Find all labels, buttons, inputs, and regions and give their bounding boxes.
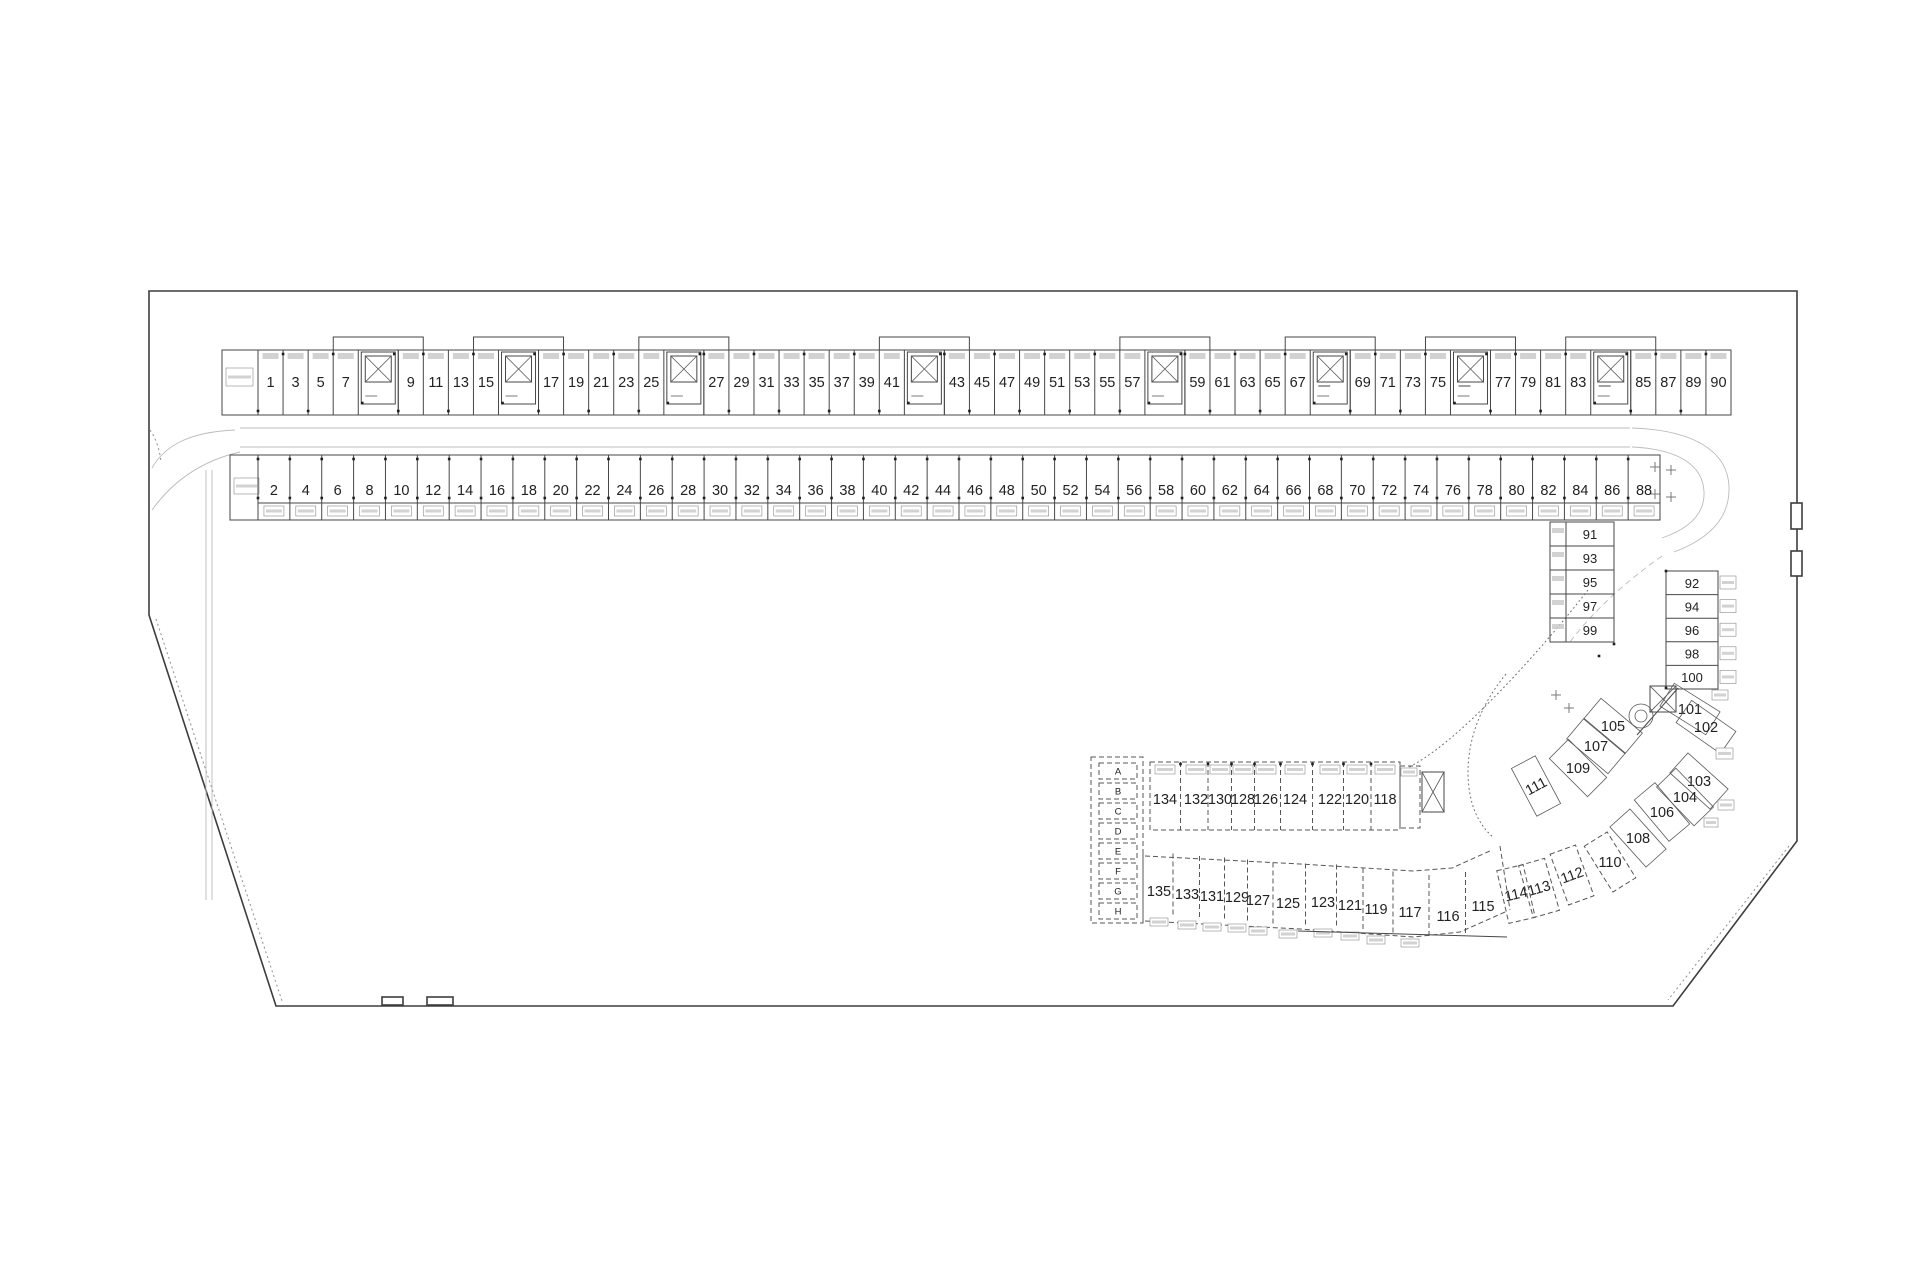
stall-number-25: 25 <box>643 375 659 391</box>
stall-number-59: 59 <box>1189 375 1205 391</box>
code-tag-text <box>1258 768 1274 771</box>
corner-mark <box>1021 497 1024 500</box>
floor-plan-canvas: 1357911131517192123252729313335373941434… <box>0 0 1920 1280</box>
stall-number-77: 77 <box>1495 375 1511 391</box>
stall-number-49: 49 <box>1024 375 1040 391</box>
code-tag-text <box>1572 510 1588 513</box>
stall-number-4: 4 <box>302 483 310 499</box>
corner-mark <box>968 410 971 413</box>
stall-number-102: 102 <box>1694 720 1718 736</box>
corner-mark <box>1374 353 1377 356</box>
code-tag-text <box>1710 353 1726 359</box>
corner-mark <box>1345 353 1348 356</box>
code-tag-text <box>1254 510 1270 513</box>
code-tag-text <box>1190 510 1206 513</box>
corner-mark <box>447 410 450 413</box>
code-tag-text <box>1094 510 1110 513</box>
stall-number-53: 53 <box>1074 375 1090 391</box>
code-tag-text <box>1413 510 1429 513</box>
stall-number-99: 99 <box>1583 623 1597 638</box>
code-tag-text <box>428 353 444 359</box>
corner-mark <box>1485 353 1488 356</box>
stall-number-22: 22 <box>584 483 600 499</box>
corner-mark <box>1349 410 1352 413</box>
corner-mark <box>1531 497 1534 500</box>
code-tag-text <box>1722 675 1734 678</box>
corner-mark <box>1564 353 1567 356</box>
stall-number-35: 35 <box>809 375 825 391</box>
corner-mark <box>1053 497 1056 500</box>
stall-number-9: 9 <box>407 375 415 391</box>
corner-mark <box>1308 497 1311 500</box>
code-tag-text <box>1369 939 1383 942</box>
stall-number-30: 30 <box>712 483 728 499</box>
code-tag-text <box>236 485 257 488</box>
code-tag-text <box>263 353 279 359</box>
code-tag-text <box>1445 510 1461 513</box>
code-tag-text <box>1251 930 1265 933</box>
stall-number-93: 93 <box>1583 551 1597 566</box>
stall-number-55: 55 <box>1099 375 1115 391</box>
code-tag-text <box>1049 353 1065 359</box>
code-tag-text <box>1403 771 1415 774</box>
corner-mark <box>1424 353 1427 356</box>
corner-mark <box>767 458 770 461</box>
code-tag-text <box>903 510 919 513</box>
corner-mark <box>332 353 335 356</box>
corner-mark <box>699 353 702 356</box>
corner-mark <box>1489 410 1492 413</box>
corner-mark <box>257 410 260 413</box>
code-tag-text <box>1099 353 1115 359</box>
corner-mark <box>1563 497 1566 500</box>
corner-mark <box>1625 353 1628 356</box>
corner-mark <box>1213 497 1216 500</box>
corner-mark <box>1053 458 1056 461</box>
corner-mark <box>1514 353 1517 356</box>
code-tag-text <box>618 353 634 359</box>
code-tag-text <box>568 353 584 359</box>
code-tag-text <box>543 353 559 359</box>
stall-number-134: 134 <box>1153 792 1177 808</box>
code-tag-text <box>1189 353 1205 359</box>
corner-mark <box>1259 410 1262 413</box>
stall-number-106: 106 <box>1650 805 1674 821</box>
corner-mark <box>1244 458 1247 461</box>
code-tag-text <box>1552 528 1564 533</box>
stall-number-133: 133 <box>1175 887 1199 903</box>
code-tag-text <box>759 353 775 359</box>
corner-mark <box>1180 353 1183 356</box>
code-tag-text <box>266 510 282 513</box>
stall-number-11: 11 <box>428 375 443 391</box>
corner-mark <box>1230 763 1233 766</box>
corner-mark <box>575 458 578 461</box>
corner-mark <box>1665 687 1668 690</box>
code-tag-text <box>809 353 825 359</box>
stall-number-21: 21 <box>593 375 609 391</box>
corner-mark <box>1244 497 1247 500</box>
stall-number-123: 123 <box>1311 895 1335 911</box>
corner-mark <box>1593 402 1596 405</box>
corner-mark <box>830 497 833 500</box>
letter-label-E: E <box>1115 847 1121 858</box>
corner-mark <box>1399 410 1402 413</box>
corner-mark <box>384 497 387 500</box>
corner-mark <box>767 497 770 500</box>
code-tag-text <box>1722 581 1734 584</box>
stall-number-26: 26 <box>648 483 664 499</box>
door-bump <box>1791 551 1802 576</box>
code-tag-text <box>999 353 1015 359</box>
code-tag-text <box>362 510 378 513</box>
corner-mark <box>1149 458 1152 461</box>
corner-mark <box>1093 353 1096 356</box>
stall-number-20: 20 <box>553 483 569 499</box>
corner-mark <box>637 410 640 413</box>
stall-number-61: 61 <box>1214 375 1230 391</box>
corner-mark <box>1068 410 1071 413</box>
code-tag-text <box>1349 768 1365 771</box>
code-tag-text <box>1381 510 1397 513</box>
corner-mark <box>307 410 310 413</box>
corner-mark <box>1655 353 1658 356</box>
stall-number-98: 98 <box>1685 647 1699 662</box>
letter-label-C: C <box>1115 807 1122 818</box>
corner-mark <box>1627 458 1630 461</box>
code-tag-text <box>648 510 664 513</box>
stall-number-109: 109 <box>1566 761 1590 777</box>
stall-number-115: 115 <box>1471 899 1494 915</box>
stall-number-46: 46 <box>967 483 983 499</box>
corner-mark <box>1119 410 1122 413</box>
code-tag-text <box>1290 353 1306 359</box>
corner-mark <box>1453 402 1456 405</box>
code-tag-text <box>1685 353 1701 359</box>
code-tag-text <box>839 510 855 513</box>
corner-mark <box>939 353 942 356</box>
code-tag-text <box>1722 628 1734 631</box>
corner-mark <box>1284 353 1287 356</box>
corner-mark <box>575 497 578 500</box>
stall-number-96: 96 <box>1685 623 1699 638</box>
letter-label-H: H <box>1115 907 1122 918</box>
corner-mark <box>1021 458 1024 461</box>
corner-mark <box>1179 763 1182 766</box>
corner-mark <box>1705 353 1708 356</box>
stall-number-71: 71 <box>1380 375 1396 391</box>
corner-mark <box>1340 458 1343 461</box>
code-tag-text <box>643 353 659 359</box>
corner-mark <box>703 497 706 500</box>
stall-number-51: 51 <box>1049 375 1065 391</box>
stall-number-125: 125 <box>1276 896 1300 912</box>
corner-mark <box>1181 458 1184 461</box>
stall-number-97: 97 <box>1583 599 1597 614</box>
corner-mark <box>671 458 674 461</box>
code-tag-text <box>1722 652 1734 655</box>
corner-mark <box>472 353 475 356</box>
code-tag-text <box>1180 924 1194 927</box>
stall-number-100: 100 <box>1681 670 1703 685</box>
corner-mark <box>416 458 419 461</box>
corner-mark <box>1627 497 1630 500</box>
stall-number-19: 19 <box>568 375 584 391</box>
corner-mark <box>384 458 387 461</box>
corner-mark <box>352 458 355 461</box>
letter-label-G: G <box>1114 887 1121 898</box>
code-tag-text <box>453 353 469 359</box>
stall-number-58: 58 <box>1158 483 1174 499</box>
stall-number-105: 105 <box>1601 719 1625 735</box>
corner-mark <box>612 353 615 356</box>
stall-number-47: 47 <box>999 375 1015 391</box>
code-tag-text <box>593 353 609 359</box>
stall-number-76: 76 <box>1445 483 1461 499</box>
corner-mark <box>393 353 396 356</box>
code-tag-text <box>1063 510 1079 513</box>
code-tag-text <box>1570 353 1586 359</box>
corner-mark <box>1276 458 1279 461</box>
stall-number-8: 8 <box>365 483 373 499</box>
stall-number-48: 48 <box>999 483 1015 499</box>
stall-number-132: 132 <box>1184 792 1208 808</box>
corner-mark <box>1311 763 1314 766</box>
corner-mark <box>1340 497 1343 500</box>
corner-mark <box>1253 763 1256 766</box>
corner-mark <box>257 458 260 461</box>
corner-mark <box>703 458 706 461</box>
corner-mark <box>1595 497 1598 500</box>
stall-number-108: 108 <box>1626 831 1650 847</box>
code-tag-text <box>1714 694 1726 697</box>
stall-number-7: 7 <box>342 375 350 391</box>
stall-number-91: 91 <box>1583 527 1597 542</box>
corner-mark <box>943 353 946 356</box>
corner-mark <box>1234 353 1237 356</box>
corner-mark <box>1629 410 1632 413</box>
code-tag-text <box>884 353 900 359</box>
stall-number-72: 72 <box>1381 483 1397 499</box>
stall-number-16: 16 <box>489 483 505 499</box>
floor-plan-page: 1357911131517192123252729313335373941434… <box>0 0 1920 1280</box>
code-tag-text <box>1377 768 1393 771</box>
corner-mark <box>1665 570 1668 573</box>
corner-mark <box>778 410 781 413</box>
corner-mark <box>639 458 642 461</box>
corner-mark <box>1468 458 1471 461</box>
stall-number-13: 13 <box>453 375 469 391</box>
code-tag-text <box>553 510 569 513</box>
corner-mark <box>289 458 292 461</box>
stall-number-34: 34 <box>776 483 792 499</box>
corner-mark <box>703 353 706 356</box>
stall-number-131: 131 <box>1200 889 1224 905</box>
code-tag-text <box>1635 353 1651 359</box>
corner-mark <box>1018 410 1021 413</box>
corner-mark <box>1370 763 1373 766</box>
code-tag-text <box>1403 942 1417 945</box>
corner-mark <box>990 497 993 500</box>
corner-mark <box>512 497 515 500</box>
stall-number-127: 127 <box>1246 893 1270 909</box>
corner-mark <box>735 497 738 500</box>
code-tag-text <box>298 510 314 513</box>
stall-number-80: 80 <box>1509 483 1525 499</box>
stall-number-119: 119 <box>1364 902 1387 918</box>
code-tag-text <box>1157 768 1173 771</box>
corner-mark <box>926 497 929 500</box>
code-tag-text <box>1322 768 1338 771</box>
corner-mark <box>958 458 961 461</box>
corner-mark <box>1404 497 1407 500</box>
code-tag-text <box>935 510 951 513</box>
code-tag-text <box>680 510 696 513</box>
code-tag-text <box>425 510 441 513</box>
corner-mark <box>397 410 400 413</box>
stall-number-18: 18 <box>521 483 537 499</box>
corner-mark <box>639 497 642 500</box>
stall-number-63: 63 <box>1239 375 1255 391</box>
code-tag-text <box>489 510 505 513</box>
code-tag-text <box>776 510 792 513</box>
code-tag-text <box>999 510 1015 513</box>
code-tag-text <box>585 510 601 513</box>
corner-mark <box>1148 402 1151 405</box>
corner-mark <box>862 458 865 461</box>
code-tag-text <box>330 510 346 513</box>
stall-number-67: 67 <box>1290 375 1306 391</box>
stall-number-2: 2 <box>270 483 278 499</box>
corner-mark <box>480 497 483 500</box>
stall-number-68: 68 <box>1317 483 1333 499</box>
corner-mark <box>320 458 323 461</box>
corner-mark <box>798 458 801 461</box>
code-tag-text <box>1031 510 1047 513</box>
stall-number-79: 79 <box>1520 375 1536 391</box>
code-tag-text <box>457 510 473 513</box>
stall-number-117: 117 <box>1398 905 1421 921</box>
code-tag-text <box>834 353 850 359</box>
stall-number-95: 95 <box>1583 575 1597 590</box>
code-tag-text <box>1636 510 1652 513</box>
code-tag-text <box>974 353 990 359</box>
code-tag-text <box>733 353 749 359</box>
corner-mark <box>1149 497 1152 500</box>
code-tag-text <box>1158 510 1174 513</box>
corner-mark <box>667 402 670 405</box>
code-tag-text <box>1074 353 1090 359</box>
stall-number-52: 52 <box>1062 483 1078 499</box>
code-tag-text <box>1430 353 1446 359</box>
stall-number-81: 81 <box>1545 375 1561 391</box>
corner-mark <box>1209 410 1212 413</box>
stall-number-33: 33 <box>784 375 800 391</box>
stall-number-122: 122 <box>1318 792 1342 808</box>
corner-mark <box>543 497 546 500</box>
corner-mark <box>878 410 881 413</box>
corner-mark <box>1436 497 1439 500</box>
code-tag-text <box>859 353 875 359</box>
stall-number-92: 92 <box>1685 576 1699 591</box>
corner-mark <box>1613 643 1616 646</box>
code-tag-text <box>1188 768 1204 771</box>
corner-mark <box>320 497 323 500</box>
code-tag-text <box>808 510 824 513</box>
stall-number-87: 87 <box>1660 375 1676 391</box>
code-tag-text <box>1212 768 1228 771</box>
stall-number-78: 78 <box>1477 483 1493 499</box>
code-tag-text <box>1343 935 1357 938</box>
stall-number-135: 135 <box>1147 884 1171 900</box>
code-tag-text <box>1660 353 1676 359</box>
stall-number-42: 42 <box>903 483 919 499</box>
corner-mark <box>533 353 536 356</box>
stall-number-32: 32 <box>744 483 760 499</box>
corner-mark <box>862 497 865 500</box>
code-tag-text <box>393 510 409 513</box>
corner-mark <box>537 410 540 413</box>
stall-number-14: 14 <box>457 483 473 499</box>
corner-mark <box>1598 655 1601 658</box>
stall-number-83: 83 <box>1570 375 1586 391</box>
stall-number-103: 103 <box>1687 774 1711 790</box>
corner-mark <box>501 402 504 405</box>
code-tag-text <box>228 376 251 379</box>
code-tag-text <box>1287 768 1303 771</box>
corner-mark <box>352 497 355 500</box>
gate-bump <box>427 997 453 1005</box>
stall-number-1: 1 <box>266 375 274 391</box>
corner-mark <box>416 497 419 500</box>
stall-number-17: 17 <box>543 375 559 391</box>
code-tag-text <box>1552 552 1564 557</box>
corner-mark <box>1117 497 1120 500</box>
stall-number-41: 41 <box>884 375 900 391</box>
corner-mark <box>1468 497 1471 500</box>
corner-mark <box>1213 458 1216 461</box>
corner-mark <box>1531 458 1534 461</box>
stall-number-50: 50 <box>1031 483 1047 499</box>
corner-mark <box>1043 353 1046 356</box>
code-tag-text <box>1405 353 1421 359</box>
corner-mark <box>587 410 590 413</box>
stall-number-43: 43 <box>949 375 965 391</box>
stall-number-66: 66 <box>1285 483 1301 499</box>
corner-mark <box>1680 410 1683 413</box>
corner-mark <box>990 458 993 461</box>
corner-mark <box>798 497 801 500</box>
code-tag-text <box>1349 510 1365 513</box>
stall-number-29: 29 <box>733 375 749 391</box>
corner-mark <box>282 353 285 356</box>
corner-mark <box>289 497 292 500</box>
letter-label-F: F <box>1115 867 1121 878</box>
stall-number-15: 15 <box>478 375 494 391</box>
stall-number-69: 69 <box>1355 375 1371 391</box>
code-tag-text <box>1520 353 1536 359</box>
stall-number-82: 82 <box>1540 483 1556 499</box>
code-tag-text <box>1235 768 1251 771</box>
stall-number-130: 130 <box>1208 792 1232 808</box>
corner-mark <box>926 458 929 461</box>
corner-mark <box>1595 458 1598 461</box>
corner-mark <box>448 458 451 461</box>
corner-mark <box>422 353 425 356</box>
corner-mark <box>1342 763 1345 766</box>
code-tag-text <box>1317 510 1333 513</box>
code-tag-text <box>712 510 728 513</box>
